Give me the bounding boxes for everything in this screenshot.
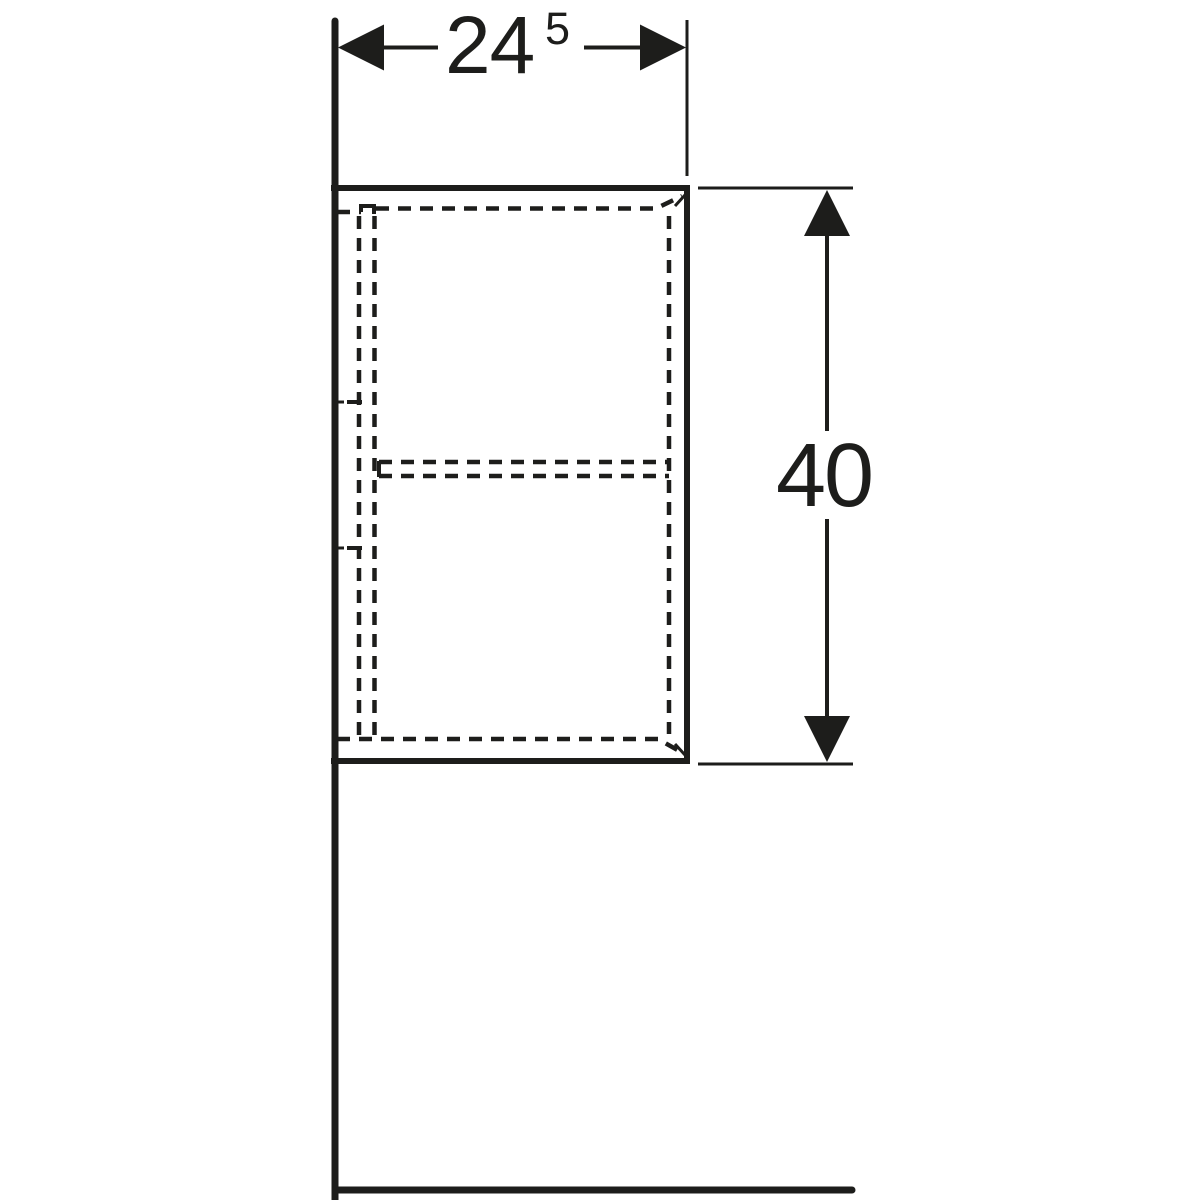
hidden-edges bbox=[337, 196, 682, 752]
hidden-bottom-edge bbox=[337, 739, 681, 752]
arrow-left-icon bbox=[338, 25, 384, 71]
door-front-step bbox=[361, 206, 374, 214]
drawing-svg: 24 5 40 bbox=[0, 0, 1200, 1200]
hidden-top-edge bbox=[376, 196, 682, 209]
technical-drawing: 24 5 40 bbox=[0, 0, 1200, 1200]
arrow-up-icon bbox=[804, 190, 850, 236]
height-dimension: 40 bbox=[698, 188, 872, 764]
reference-lines bbox=[335, 21, 852, 1200]
height-dim-value: 40 bbox=[776, 426, 872, 526]
width-dim-superscript: 5 bbox=[545, 3, 570, 54]
width-dimension: 24 5 bbox=[338, 0, 687, 176]
arrow-right-icon bbox=[640, 25, 686, 71]
width-dim-value: 24 bbox=[445, 0, 534, 91]
cabinet-corner-mitre-top bbox=[675, 195, 685, 206]
arrow-down-icon bbox=[804, 716, 850, 762]
